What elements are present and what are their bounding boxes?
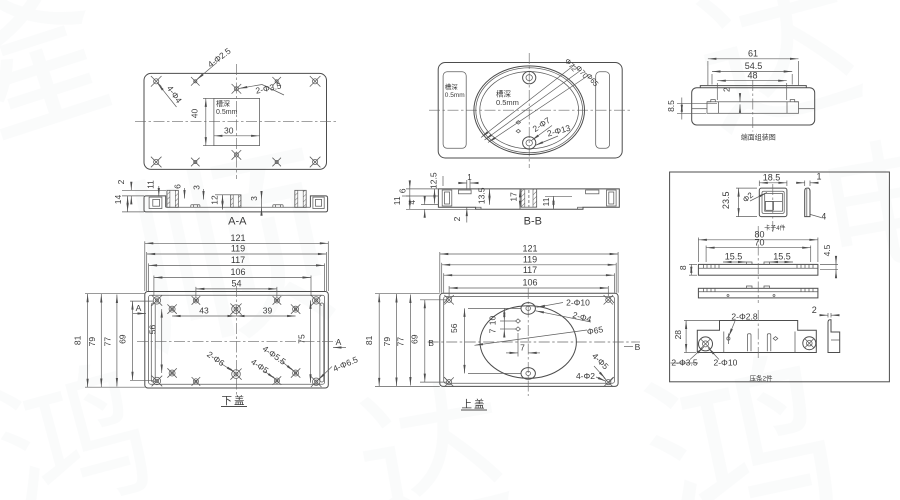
svg-text:2-Φ4: 2-Φ4 [571,310,592,325]
svg-text:81: 81 [364,335,374,345]
svg-text:106: 106 [230,267,245,277]
svg-text:6: 6 [397,188,407,193]
svg-text:2: 2 [116,179,126,184]
svg-text:13.5: 13.5 [476,187,486,204]
svg-text:11: 11 [541,197,551,206]
svg-text:压条2件: 压条2件 [749,373,773,382]
svg-text:48: 48 [747,70,757,80]
svg-text:下盖: 下盖 [222,394,247,407]
svg-text:69: 69 [118,334,128,344]
svg-text:2-Φ10: 2-Φ10 [714,358,738,368]
svg-text:12: 12 [210,195,220,205]
svg-text:18.5: 18.5 [763,173,781,183]
svg-text:69: 69 [409,334,419,344]
svg-text:2-Φ3.5: 2-Φ3.5 [671,358,697,368]
svg-text:56: 56 [449,323,459,333]
svg-text:14: 14 [113,195,123,205]
svg-text:106: 106 [522,278,537,288]
svg-text:槽深: 槽深 [496,89,511,99]
svg-text:4-Φ5: 4-Φ5 [590,351,611,372]
svg-text:121: 121 [230,233,245,243]
svg-text:2: 2 [722,87,732,92]
svg-text:28: 28 [673,330,683,340]
svg-text:43: 43 [199,306,209,316]
svg-text:8: 8 [678,265,688,270]
svg-text:端面组装图: 端面组装图 [741,133,776,142]
svg-text:56: 56 [148,325,158,335]
svg-text:上盖: 上盖 [462,398,487,411]
svg-text:A-A: A-A [228,216,247,228]
svg-text:0.5mm: 0.5mm [496,98,519,107]
svg-text:7: 7 [488,328,498,333]
svg-text:B-B: B-B [524,216,542,228]
svg-text:4-Φ2.5: 4-Φ2.5 [206,46,233,70]
svg-text:2-Φ13: 2-Φ13 [546,123,572,139]
svg-text:10: 10 [488,316,498,326]
svg-text:117: 117 [523,265,537,275]
svg-text:2: 2 [452,216,462,221]
svg-text:2-Φ10: 2-Φ10 [566,297,590,307]
svg-text:4: 4 [407,200,417,205]
svg-text:电: 电 [806,122,900,299]
svg-text:鸿: 鸿 [0,347,168,500]
svg-text:117: 117 [231,255,245,265]
svg-text:79: 79 [382,337,392,347]
svg-text:0.5mm: 0.5mm [216,109,238,116]
svg-text:4.5: 4.5 [822,244,832,256]
svg-text:40: 40 [190,109,200,119]
svg-text:槽深: 槽深 [445,82,459,91]
svg-text:4-Φ4: 4-Φ4 [165,84,184,106]
svg-text:23.5: 23.5 [721,192,731,210]
svg-text:79: 79 [87,337,97,347]
svg-text:81: 81 [72,335,82,345]
svg-text:2-Φ3.5: 2-Φ3.5 [255,80,283,95]
svg-text:39: 39 [263,306,273,316]
svg-text:70: 70 [754,237,764,247]
svg-text:4-Φ6.5: 4-Φ6.5 [331,354,359,374]
svg-text:77: 77 [102,337,112,347]
svg-text:3: 3 [191,185,201,190]
svg-text:2-Φ2.8: 2-Φ2.8 [731,312,757,322]
svg-text:1: 1 [816,171,821,181]
svg-text:121: 121 [522,244,537,254]
svg-text:0.5mm: 0.5mm [445,92,465,99]
svg-text:B: B [428,338,434,348]
svg-text:4-Φ2: 4-Φ2 [576,371,595,381]
svg-text:Φ65: Φ65 [584,72,600,89]
svg-text:15.5: 15.5 [725,252,743,262]
svg-text:6: 6 [172,184,182,189]
svg-text:Φ2: Φ2 [741,190,756,204]
svg-text:54: 54 [231,279,241,289]
svg-text:B: B [635,342,641,352]
svg-text:11: 11 [392,196,402,205]
svg-text:30: 30 [224,125,234,135]
svg-text:75: 75 [297,334,307,344]
svg-text:隆: 隆 [0,0,130,191]
svg-text:7: 7 [520,342,525,352]
svg-text:4: 4 [821,212,826,222]
svg-text:12.5: 12.5 [429,172,439,189]
svg-text:1: 1 [467,173,472,182]
svg-text:鸿: 鸿 [628,336,858,500]
svg-text:119: 119 [231,244,245,254]
svg-text:2: 2 [812,305,817,315]
svg-text:卡子4件: 卡子4件 [764,224,785,232]
svg-text:119: 119 [523,255,537,265]
svg-text:77: 77 [395,337,405,347]
svg-text:17: 17 [509,192,519,202]
svg-text:槽深: 槽深 [216,99,230,108]
svg-text:15.5: 15.5 [773,252,791,262]
svg-text:达: 达 [345,365,522,500]
svg-text:A: A [336,337,342,347]
svg-text:Φ65: Φ65 [586,324,604,337]
svg-text:61: 61 [748,49,758,59]
svg-text:3: 3 [249,196,259,201]
svg-text:A: A [136,303,142,313]
svg-text:11: 11 [146,180,156,189]
svg-text:8.5: 8.5 [666,100,676,112]
